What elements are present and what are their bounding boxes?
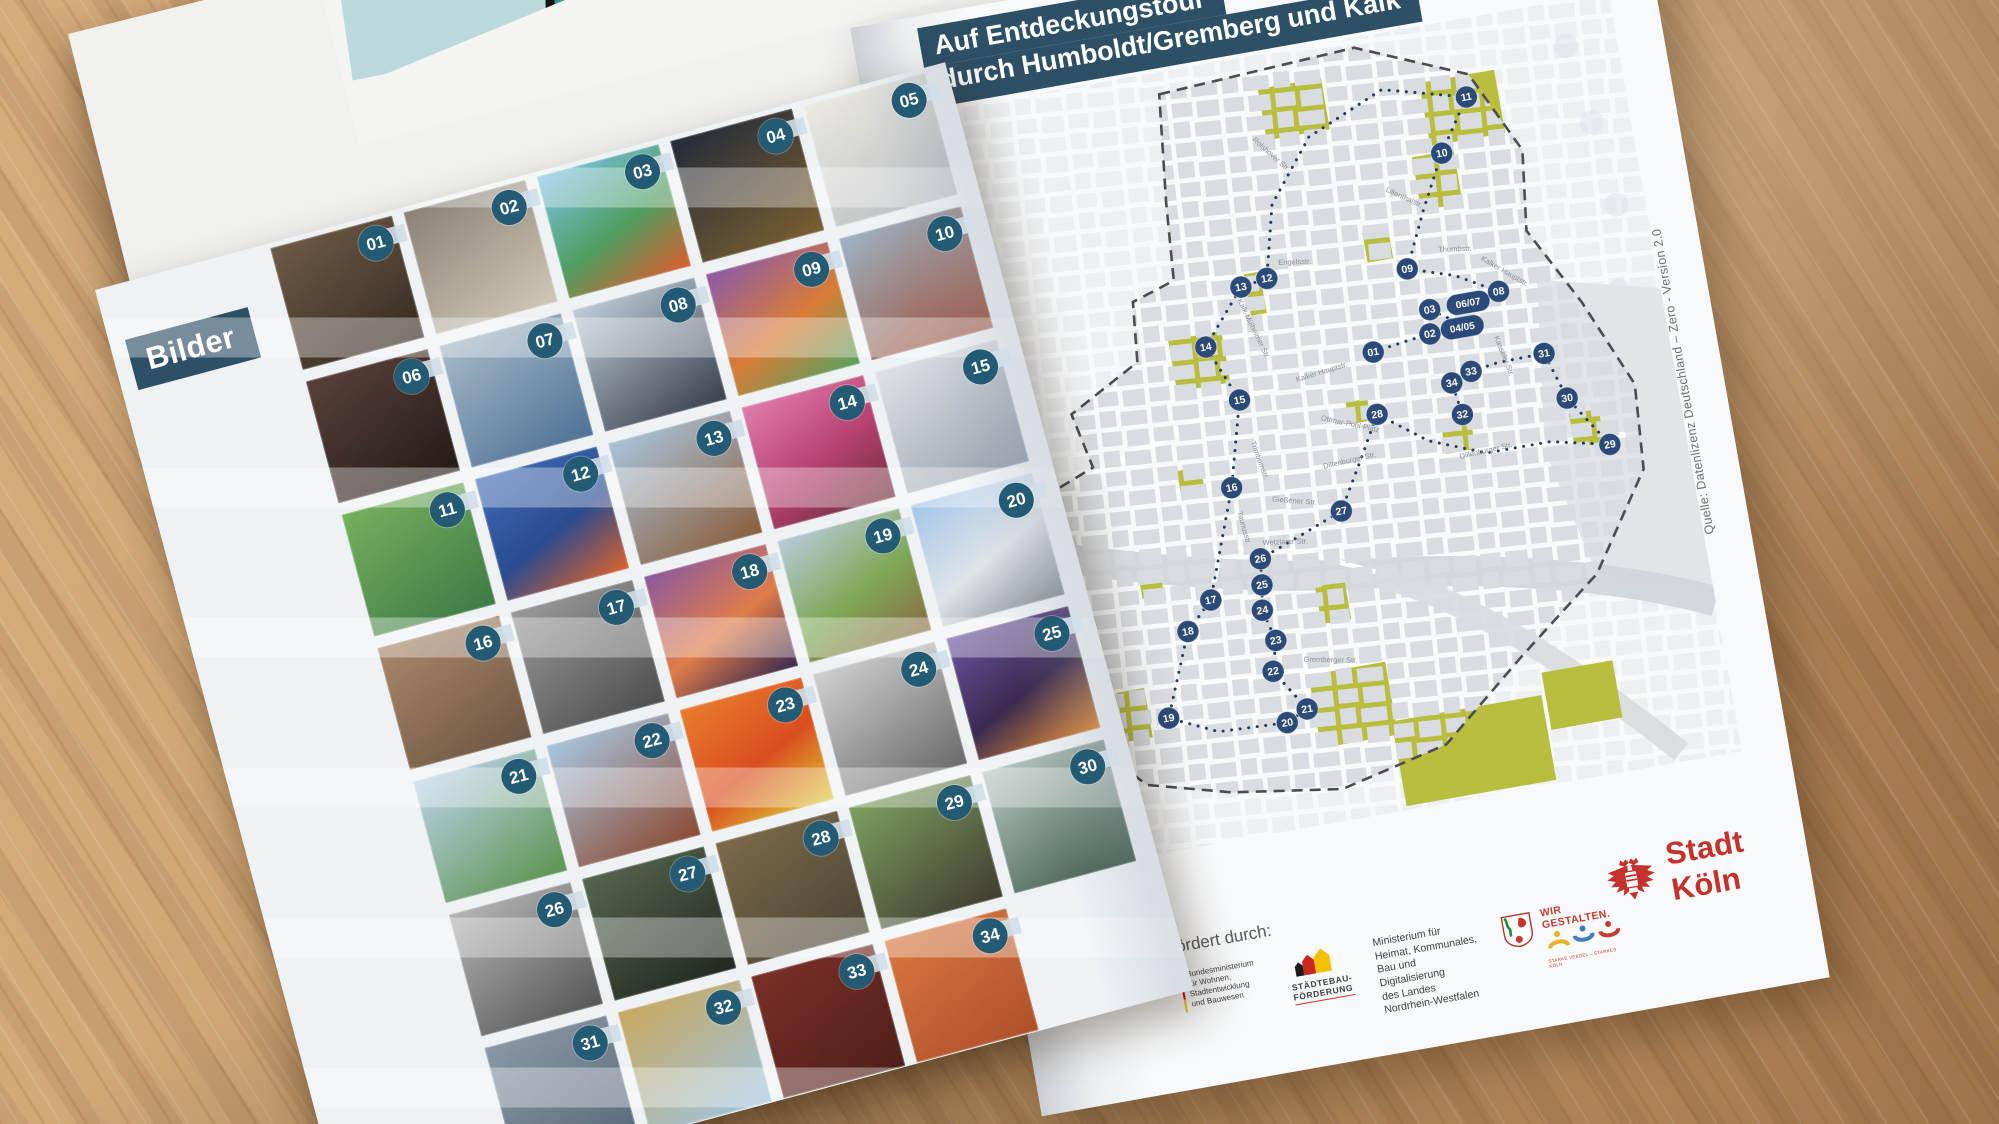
- svg-text:08: 08: [1492, 285, 1506, 299]
- svg-text:30: 30: [1560, 392, 1574, 406]
- photo-thumbnail: 23: [680, 677, 834, 831]
- svg-text:12: 12: [1260, 272, 1274, 286]
- photo-thumbnail: 11: [342, 482, 496, 636]
- photo-thumbnail: 03: [537, 144, 691, 298]
- photo-thumbnail: 27: [582, 846, 736, 1000]
- svg-text:10: 10: [1435, 147, 1449, 161]
- photo-thumbnail: 08: [572, 277, 726, 431]
- green-space: [1541, 660, 1622, 730]
- photo-thumbnail: 28: [715, 811, 869, 965]
- svg-text:02: 02: [1423, 327, 1437, 341]
- street-label: Gremberger Str.: [1304, 655, 1358, 665]
- staedtebaufoerderung-logo: STÄDTEBAU- FÖRDERUNG: [1286, 942, 1357, 1013]
- photo-thumbnail: 24: [813, 642, 967, 796]
- svg-text:28: 28: [1370, 408, 1384, 422]
- photo-thumbnail: 18: [644, 544, 798, 698]
- svg-text:09: 09: [1401, 262, 1415, 276]
- photo-thumbnail: 20: [911, 473, 1065, 627]
- svg-text:27: 27: [1335, 505, 1349, 519]
- desk-scene: Auf Entdeckungstour durch Humboldt/Gremb…: [0, 0, 1999, 1124]
- photo-thumbnail: 12: [475, 447, 629, 601]
- photo-thumbnail: 10: [839, 206, 993, 360]
- photo-thumbnail: 29: [849, 775, 1003, 929]
- photo-thumbnail: 25: [946, 606, 1100, 760]
- photo-thumbnail: 02: [403, 180, 557, 334]
- svg-text:19: 19: [1162, 712, 1176, 726]
- svg-text:33: 33: [1464, 365, 1478, 379]
- svg-text:11: 11: [1460, 91, 1473, 105]
- koeln-eagle-icon: [1602, 850, 1662, 908]
- stadt-koeln-logo: Stadt Köln: [1600, 813, 1813, 919]
- photo-thumbnail: 32: [618, 980, 772, 1124]
- photo-thumbnail: 01: [270, 216, 424, 370]
- photo-thumbnail: 07: [439, 313, 593, 467]
- svg-text:18: 18: [1181, 625, 1195, 639]
- street-label: Wetzlarer Str.: [1262, 536, 1308, 547]
- street-label: Engelsstr.: [1278, 257, 1311, 267]
- svg-text:26: 26: [1254, 552, 1268, 566]
- photo-thumbnail: 22: [546, 713, 700, 867]
- photo-thumbnail: 19: [777, 508, 931, 662]
- nrw-coat-of-arms-icon: [1500, 909, 1536, 952]
- stadt-koeln-wordmark: Stadt Köln: [1663, 813, 1814, 908]
- svg-text:03: 03: [1423, 303, 1437, 317]
- svg-text:16: 16: [1225, 481, 1239, 495]
- photo-thumbnail: 15: [875, 339, 1029, 493]
- svg-text:01: 01: [1367, 346, 1381, 360]
- svg-text:22: 22: [1266, 665, 1280, 679]
- svg-text:34: 34: [1445, 376, 1459, 390]
- photo-thumbnail: 04: [670, 108, 824, 262]
- photo-thumbnail: 16: [377, 616, 531, 770]
- svg-text:23: 23: [1269, 634, 1283, 648]
- photo-thumbnail: 05: [803, 73, 957, 227]
- svg-text:17: 17: [1204, 594, 1218, 608]
- photo-thumbnail: 21: [413, 749, 567, 903]
- photo-thumbnail: 30: [982, 739, 1136, 893]
- svg-text:13: 13: [1234, 281, 1248, 295]
- photo-thumbnail: 09: [706, 242, 860, 396]
- photo-thumbnail: 26: [449, 882, 603, 1036]
- svg-text:32: 32: [1456, 408, 1470, 422]
- photo-thumbnail: 17: [511, 580, 665, 734]
- street-label: Thumbstr.: [1438, 244, 1472, 254]
- svg-text:20: 20: [1281, 716, 1295, 730]
- svg-text:15: 15: [1233, 394, 1247, 408]
- photo-thumbnail: 14: [741, 375, 895, 529]
- svg-text:24: 24: [1256, 604, 1270, 618]
- svg-text:21: 21: [1300, 702, 1314, 716]
- photo-thumbnail: 06: [306, 349, 460, 503]
- houses-icon: [1286, 944, 1336, 978]
- svg-text:29: 29: [1603, 438, 1617, 452]
- photo-thumbnail: 13: [608, 411, 762, 565]
- svg-text:14: 14: [1199, 341, 1213, 355]
- ministerium-nrw-text: Ministerium für Heimat, Kommunales, Bau …: [1372, 919, 1489, 1018]
- svg-text:25: 25: [1255, 578, 1269, 592]
- svg-text:31: 31: [1537, 347, 1551, 361]
- photo-thumbnail: 31: [484, 1015, 638, 1124]
